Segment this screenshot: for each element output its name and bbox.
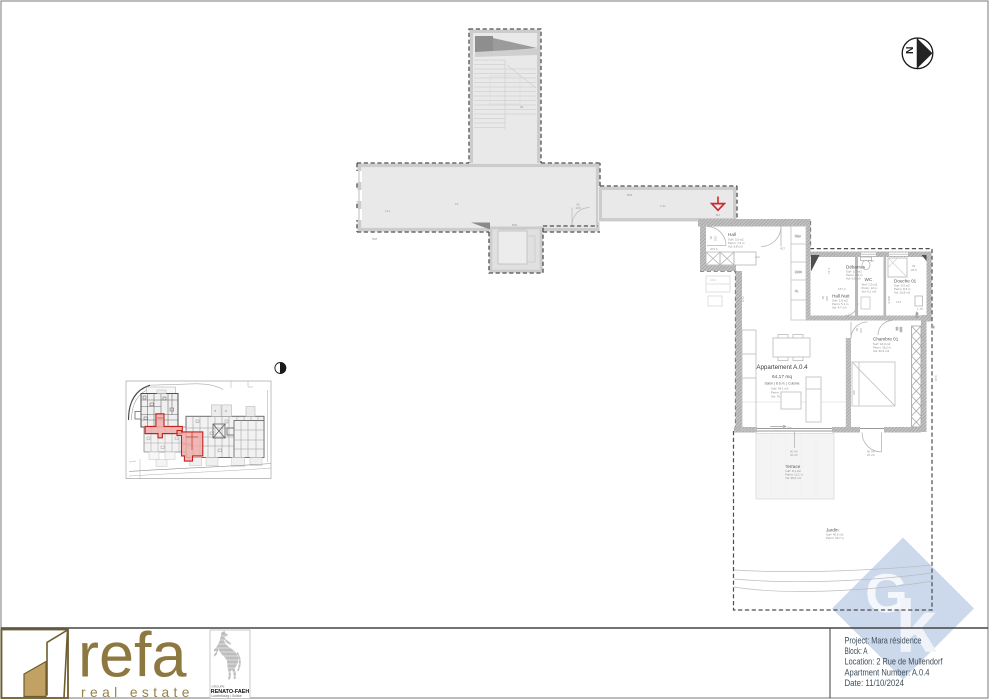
- svg-text:Perim: 33.7 m: Perim: 33.7 m: [826, 536, 845, 540]
- svg-text:4L: 4L: [795, 289, 799, 293]
- svg-text:real estate: real estate: [81, 685, 194, 699]
- svg-text:B: B: [215, 409, 217, 413]
- svg-text:62: 62: [931, 325, 935, 329]
- svg-text:205,5: 205,5: [887, 296, 891, 304]
- svg-text:-26,5: -26,5: [910, 268, 917, 272]
- svg-text:172: 172: [896, 300, 901, 304]
- svg-text:Vol: 8,8 m3: Vol: 8,8 m3: [728, 245, 743, 249]
- svg-text:90: 90: [709, 236, 713, 240]
- svg-text:20 20: 20 20: [867, 453, 875, 457]
- svg-text:Chambre 01: Chambre 01: [873, 337, 899, 342]
- svg-text:306: 306: [852, 390, 856, 395]
- svg-text:B: B: [225, 409, 227, 413]
- svg-text:90: 90: [821, 296, 825, 300]
- svg-text:1,44: 1,44: [827, 268, 831, 274]
- svg-text:80: 80: [855, 328, 859, 332]
- svg-text:N: N: [903, 47, 915, 55]
- svg-text:220: 220: [714, 236, 718, 241]
- svg-text:Project: Mara résidence: Project: Mara résidence: [845, 635, 922, 646]
- svg-text:LV90: LV90: [795, 270, 802, 274]
- svg-text:90: 90: [895, 327, 899, 331]
- svg-text:Appartement A.0.4: Appartement A.0.4: [756, 364, 808, 371]
- svg-text:Vol: 28,3 m3: Vol: 28,3 m3: [785, 476, 801, 480]
- svg-text:06: 06: [520, 105, 524, 109]
- svg-text:64,17 mq: 64,17 mq: [772, 374, 792, 380]
- svg-text:1,75: 1,75: [917, 307, 923, 311]
- svg-text:220: 220: [899, 327, 903, 332]
- svg-text:4,10: 4,10: [934, 375, 938, 381]
- svg-text:Block: A: Block: A: [845, 645, 869, 656]
- svg-text:Hall: Hall: [728, 232, 736, 237]
- svg-text:B4: B4: [716, 213, 720, 217]
- svg-text:refa: refa: [78, 621, 188, 691]
- svg-text:141: 141: [385, 209, 390, 213]
- svg-text:16: 16: [455, 202, 459, 206]
- svg-text:B05: B05: [627, 193, 633, 197]
- svg-text:Vol: 4,7 m3: Vol: 4,7 m3: [832, 306, 847, 310]
- svg-text:2x2: 2x2: [755, 255, 760, 259]
- svg-text:1,51: 1,51: [660, 204, 666, 208]
- svg-text:157,3: 157,3: [838, 287, 846, 291]
- svg-text:Location: 2 Rue de Mullendorf: Location: 2 Rue de Mullendorf: [845, 656, 943, 667]
- svg-text:220: 220: [825, 296, 829, 301]
- svg-text:508: 508: [372, 237, 377, 241]
- svg-text:Vol: 40,9 m3: Vol: 40,9 m3: [873, 349, 889, 353]
- svg-text:7,10: 7,10: [868, 259, 874, 263]
- svg-text:Vol: 10,8 m3: Vol: 10,8 m3: [894, 291, 910, 295]
- svg-text:frigo: frigo: [795, 234, 801, 238]
- svg-text:H06+: H06+: [710, 278, 717, 282]
- svg-text:WC: WC: [865, 277, 873, 282]
- svg-text:Vol: 6,1 m3: Vol: 6,1 m3: [862, 290, 877, 294]
- svg-text:210: 210: [859, 328, 863, 333]
- svg-text:Apartment Number: A.0.4: Apartment Number: A.0.4: [845, 666, 930, 677]
- svg-text:203,6: 203,6: [710, 247, 718, 251]
- svg-text:Vol: 0,9 m3: Vol: 0,9 m3: [846, 277, 861, 281]
- svg-text:46,5: 46,5: [915, 312, 919, 318]
- svg-text:220: 220: [575, 206, 580, 210]
- svg-text:20 20: 20 20: [790, 453, 798, 457]
- svg-text:0m: 0m: [788, 426, 793, 430]
- svg-text:Salon | 8 à m. | Cuisine: Salon | 8 à m. | Cuisine: [765, 382, 800, 386]
- svg-text:Date: 11/10/2024: Date: 11/10/2024: [845, 677, 905, 688]
- svg-text:427: 427: [780, 247, 785, 251]
- svg-text:71,5: 71,5: [741, 296, 745, 302]
- svg-text:Luxembourg • Suisse: Luxembourg • Suisse: [212, 694, 242, 698]
